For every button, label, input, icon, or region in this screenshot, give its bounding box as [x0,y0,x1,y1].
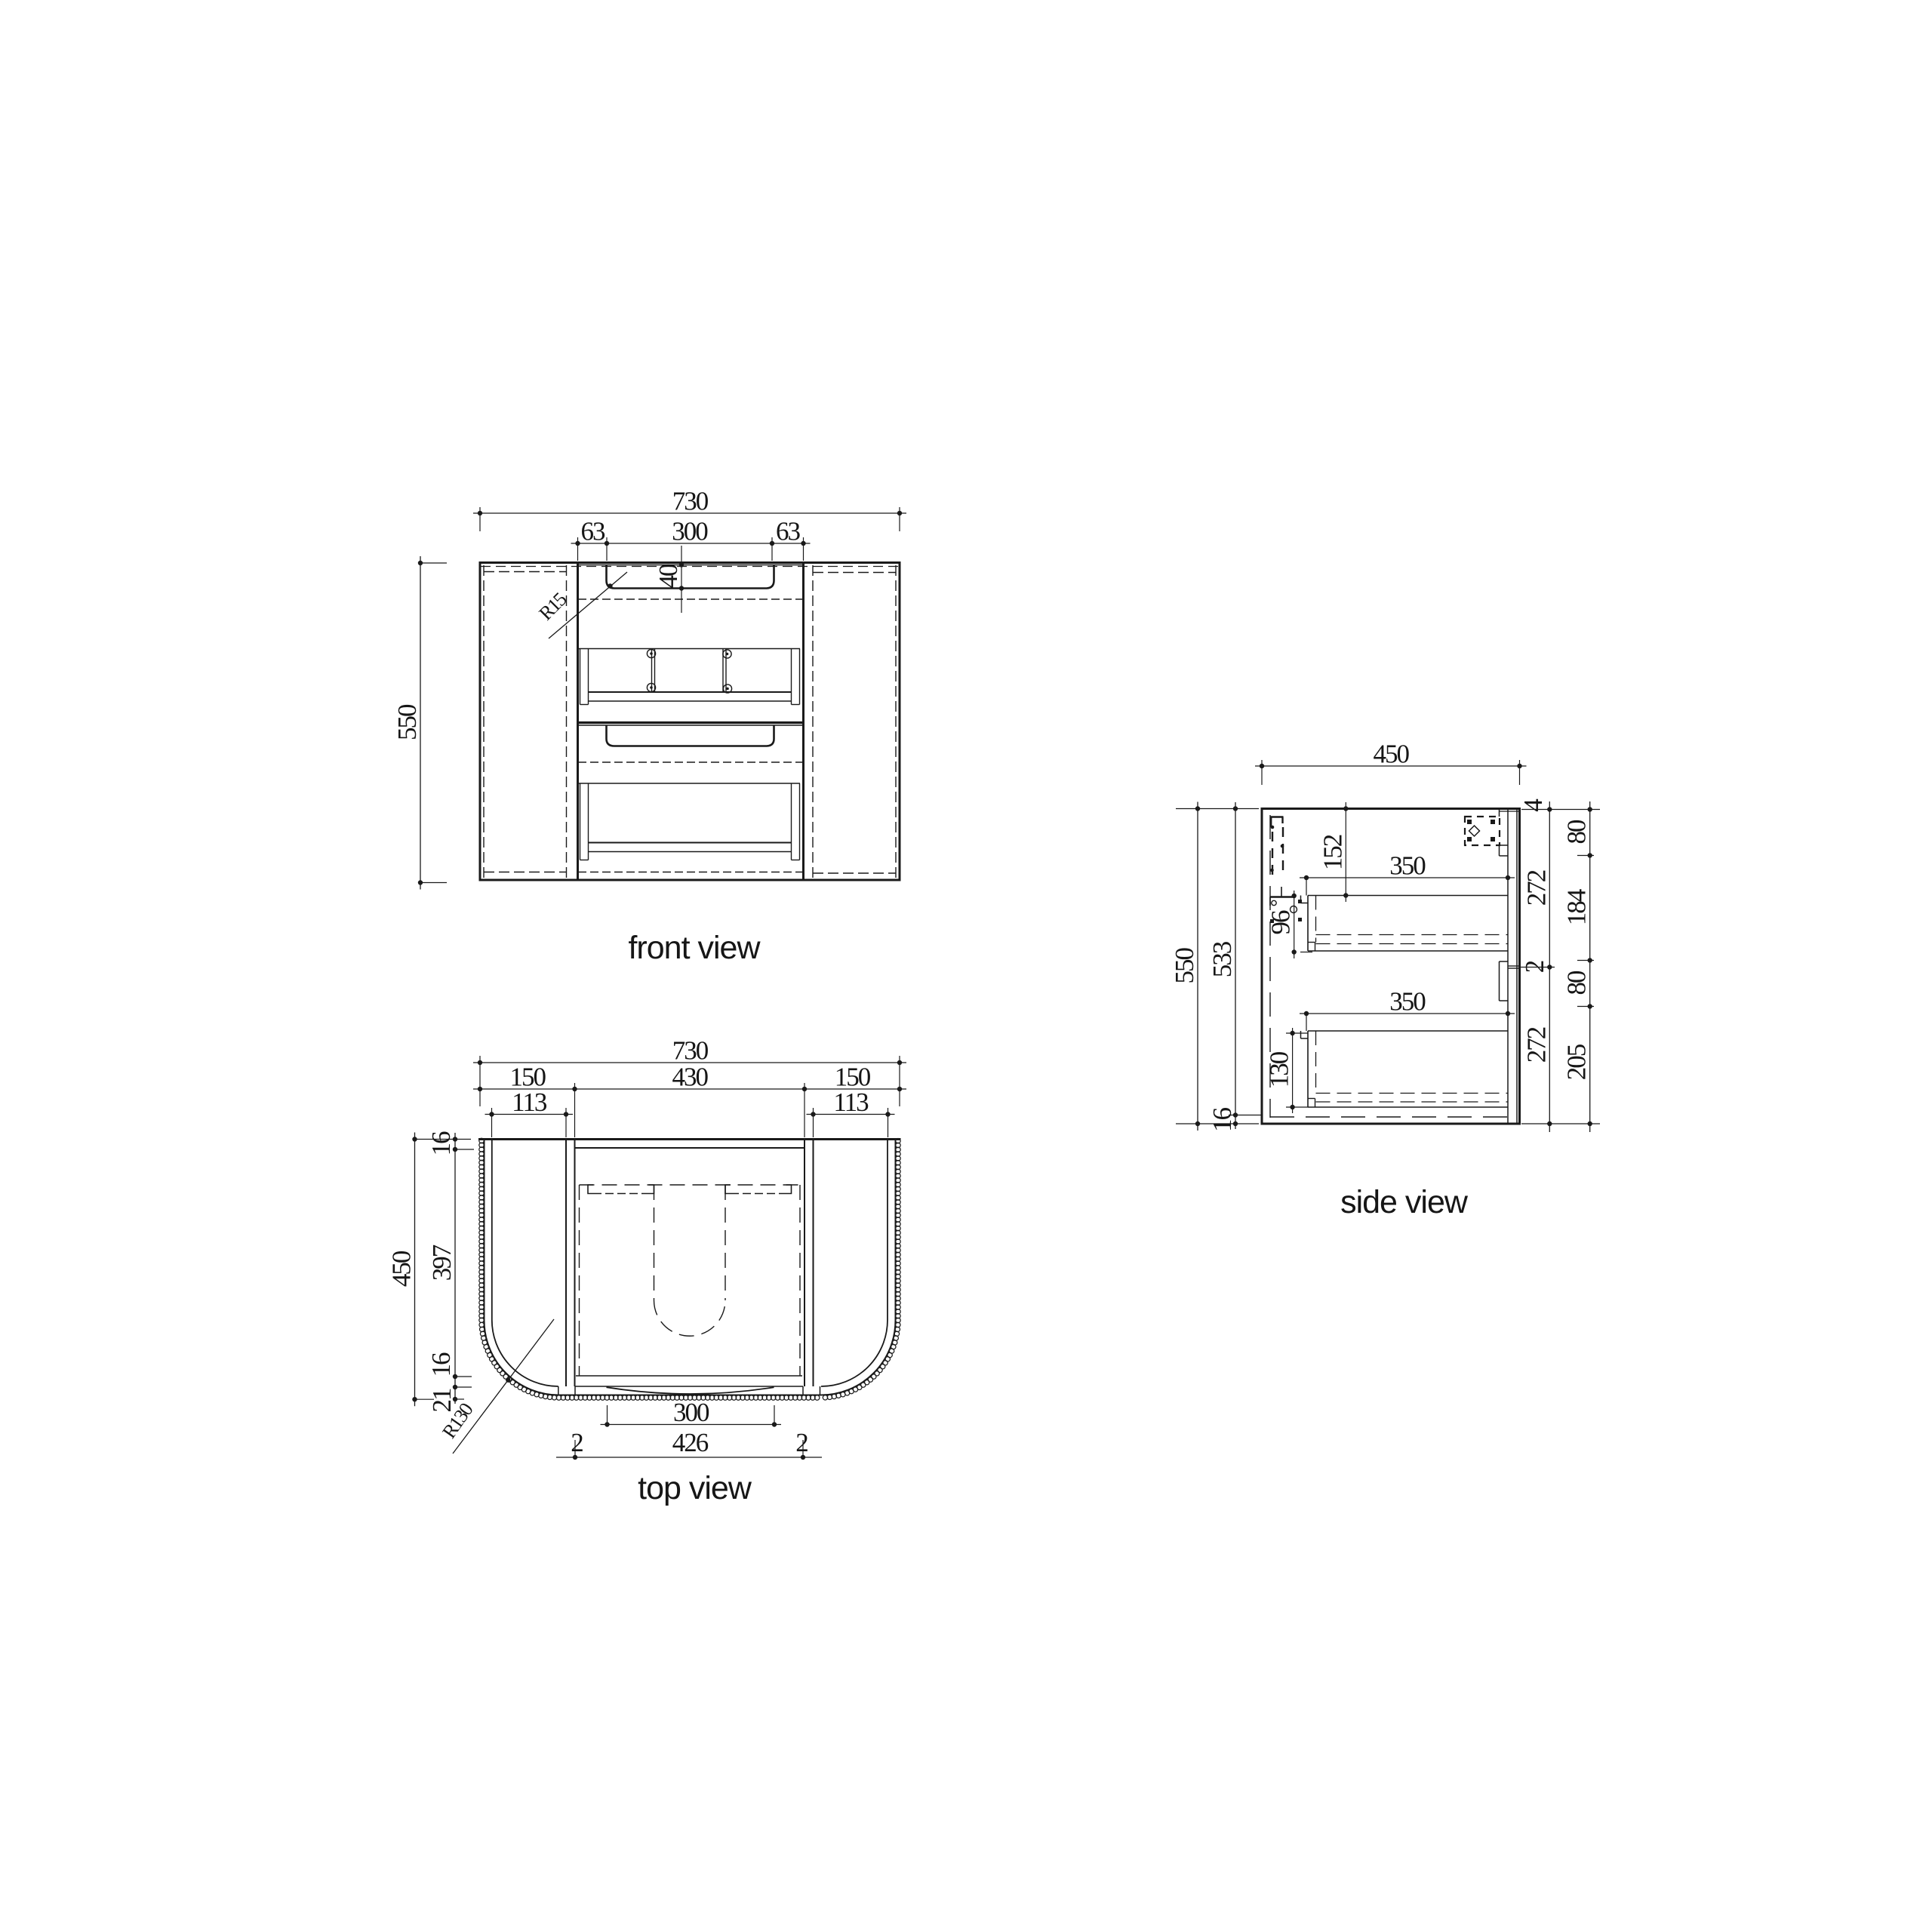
svg-text:730: 730 [672,487,709,516]
svg-text:272: 272 [1521,1027,1551,1063]
svg-text:16: 16 [1207,1108,1237,1133]
svg-text:152: 152 [1318,835,1347,870]
svg-text:426: 426 [672,1428,709,1457]
svg-text:450: 450 [387,1251,417,1287]
svg-text:16: 16 [426,1352,456,1377]
svg-text:300: 300 [673,1398,709,1427]
svg-text:272: 272 [1521,870,1551,906]
svg-text:4: 4 [1518,799,1548,812]
svg-text:40: 40 [654,564,683,589]
svg-text:550: 550 [392,704,422,740]
svg-text:front view: front view [628,930,761,966]
svg-text:430: 430 [672,1063,709,1092]
svg-text:80: 80 [1562,971,1592,995]
svg-text:side view: side view [1340,1184,1469,1220]
svg-text:184: 184 [1562,889,1592,925]
svg-text:2: 2 [571,1428,583,1457]
svg-text:450: 450 [1374,740,1410,769]
svg-text:top view: top view [638,1470,752,1506]
svg-text:350: 350 [1389,851,1426,881]
svg-text:113: 113 [512,1088,547,1117]
svg-text:63: 63 [581,517,606,546]
svg-text:63: 63 [776,517,801,546]
svg-text:2: 2 [795,1428,808,1457]
svg-text:350: 350 [1389,987,1426,1017]
svg-text:16: 16 [426,1131,456,1156]
svg-text:533: 533 [1207,941,1237,977]
svg-text:2: 2 [1520,961,1549,973]
svg-text:R15: R15 [535,589,571,625]
svg-text:130: 130 [1265,1051,1294,1088]
svg-text:550: 550 [1170,948,1199,984]
svg-text:96: 96 [1266,910,1296,935]
svg-text:113: 113 [833,1088,869,1117]
svg-text:397: 397 [427,1244,457,1281]
svg-text:205: 205 [1562,1044,1592,1080]
svg-text:730: 730 [672,1036,709,1066]
svg-text:80: 80 [1562,820,1592,844]
svg-text:300: 300 [672,517,708,546]
